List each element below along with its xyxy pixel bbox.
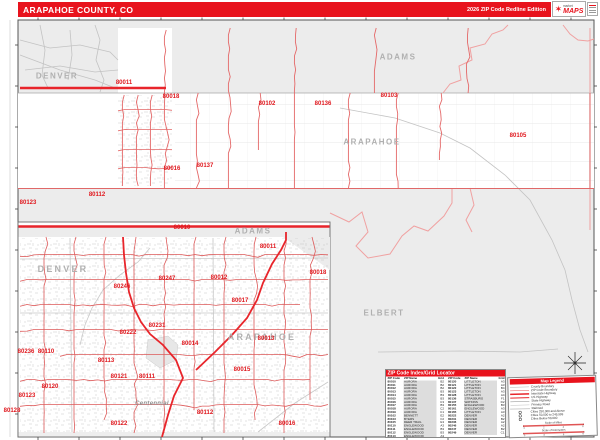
zip-index-row: 80249DENVERC1 [448,431,505,434]
map-sheet: ARAPAHOE COUNTY, CO 2026 ZIP Code Redlin… [0,0,600,440]
map-title: ARAPAHOE COUNTY, CO [23,5,133,15]
zip-index-panel: ZIP Code Index/Grid Locator ZIP CodeZIP … [385,369,506,438]
title-bar: ARAPAHOE COUNTY, CO 2026 ZIP Code Redlin… [18,2,551,17]
rail-sample-icon [511,408,530,410]
legend-line-items: County BoundaryZIP Code BoundaryIntersta… [510,383,596,411]
statehwy-sample-icon [510,401,529,402]
legend-panel: Map Legend County BoundaryZIP Code Bound… [507,375,598,438]
publisher-logo: ✶ market MAPS [552,1,586,17]
city-dot-icon [519,418,522,421]
legend-scalebars: Scale of Miles0246Scale of Kilometers036… [511,420,596,437]
county-sample-icon [510,387,529,388]
zip-index-row: 80113ENGLEWOODA3 [388,435,445,438]
logo-brand-top: market [563,4,573,7]
zip-index-column-right: ZIP CodeZIP NameGrid80120LITTLETONA38012… [448,377,505,438]
logo-fineprint [587,2,598,16]
ushwy-sample-icon [510,397,529,399]
zip-sample-icon [510,390,529,391]
zip-index-column-left: ZIP CodeZIP NameGrid80010AURORAB280011AU… [388,377,445,438]
logo-star-icon: ✶ [555,5,563,14]
map-canvas [0,0,600,440]
road-sample-icon [510,405,529,406]
inset-map [18,222,330,437]
logo-brand-main: MAPS [563,8,583,15]
edition-label: 2026 ZIP Code Redline Edition [467,7,546,13]
